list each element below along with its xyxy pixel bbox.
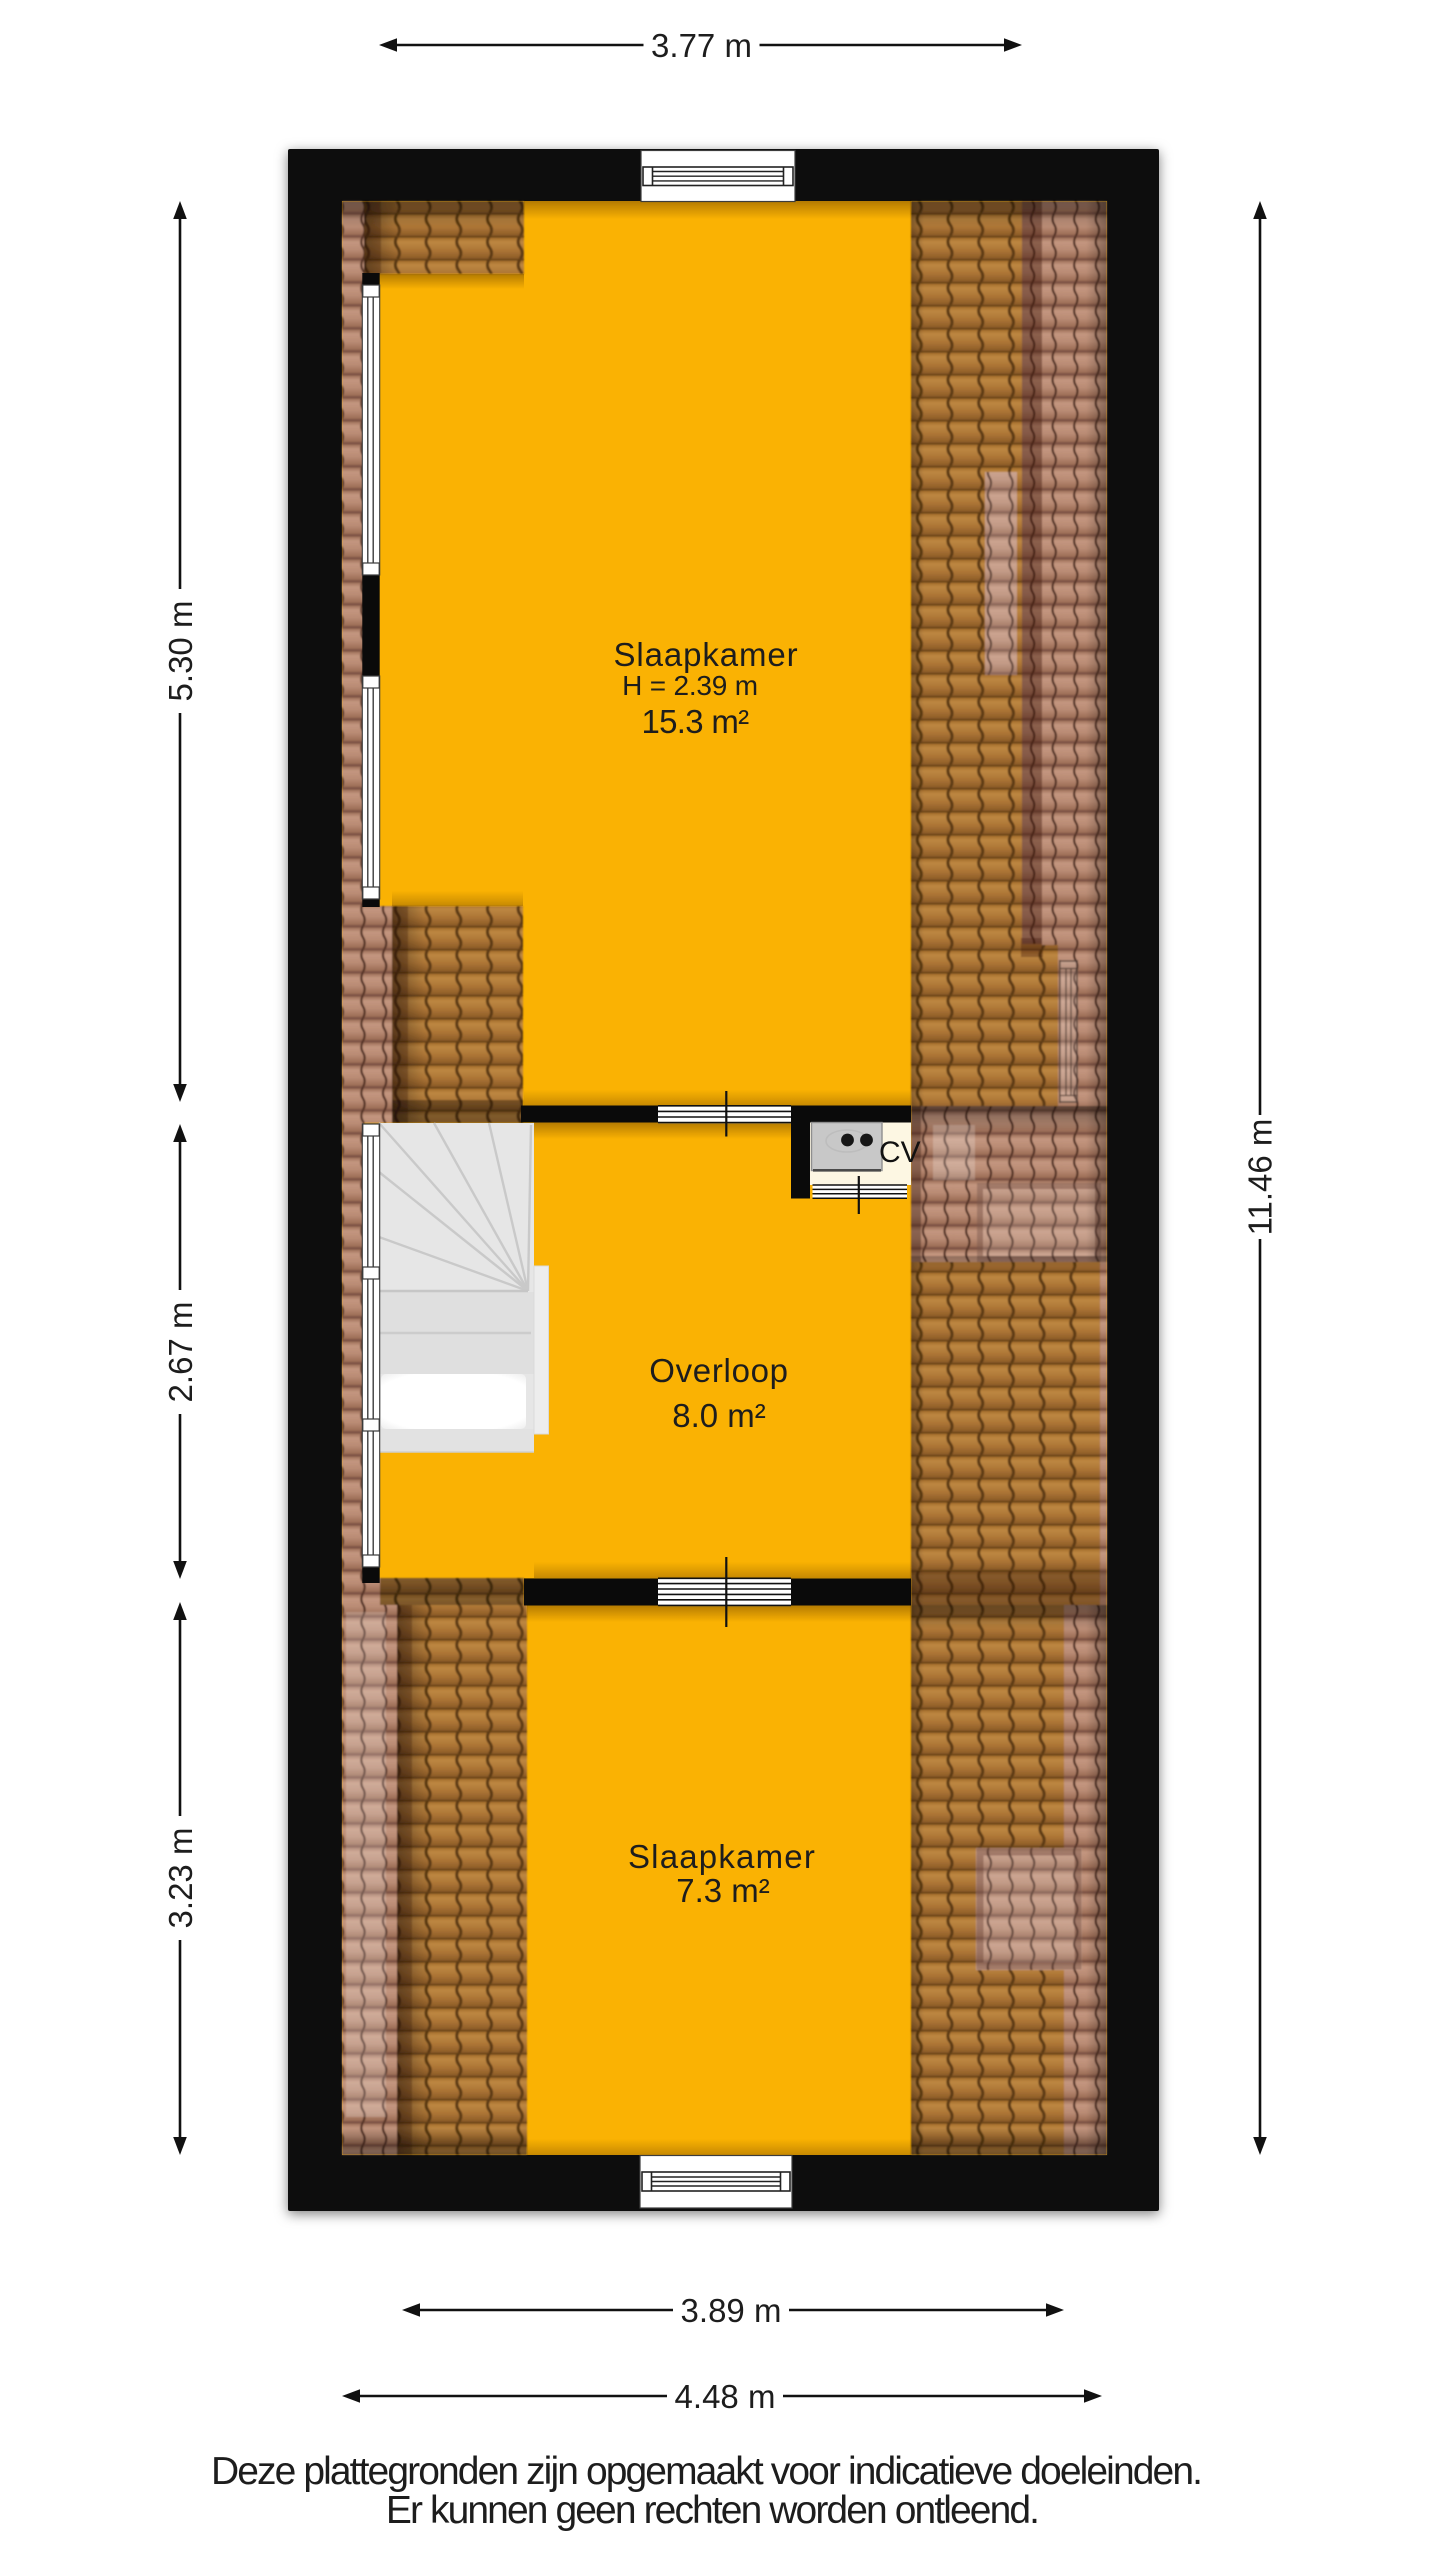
svg-text:Er kunnen geen rechten worden: Er kunnen geen rechten worden ontleend. [386, 2489, 1038, 2532]
svg-text:5.30 m: 5.30 m [162, 601, 199, 702]
svg-text:Slaapkamer: Slaapkamer [628, 1838, 816, 1875]
svg-text:11.46 m: 11.46 m [1242, 1119, 1279, 1236]
svg-text:3.77 m: 3.77 m [651, 27, 752, 64]
svg-text:3.89 m: 3.89 m [681, 2292, 782, 2329]
svg-text:Deze plattegronden zijn opgema: Deze plattegronden zijn opgemaakt voor i… [211, 2450, 1201, 2493]
svg-text:Overloop: Overloop [649, 1352, 789, 1389]
svg-text:3.23 m: 3.23 m [162, 1828, 199, 1929]
svg-text:8.0 m²: 8.0 m² [672, 1397, 766, 1434]
svg-text:4.48 m: 4.48 m [675, 2378, 776, 2415]
svg-text:2.67 m: 2.67 m [162, 1302, 199, 1403]
svg-text:7.3 m²: 7.3 m² [676, 1872, 770, 1909]
svg-text:CV: CV [879, 1136, 921, 1169]
svg-text:Slaapkamer: Slaapkamer [613, 636, 798, 673]
svg-text:15.3 m²: 15.3 m² [642, 703, 750, 740]
svg-text:H = 2.39 m: H = 2.39 m [622, 670, 758, 701]
